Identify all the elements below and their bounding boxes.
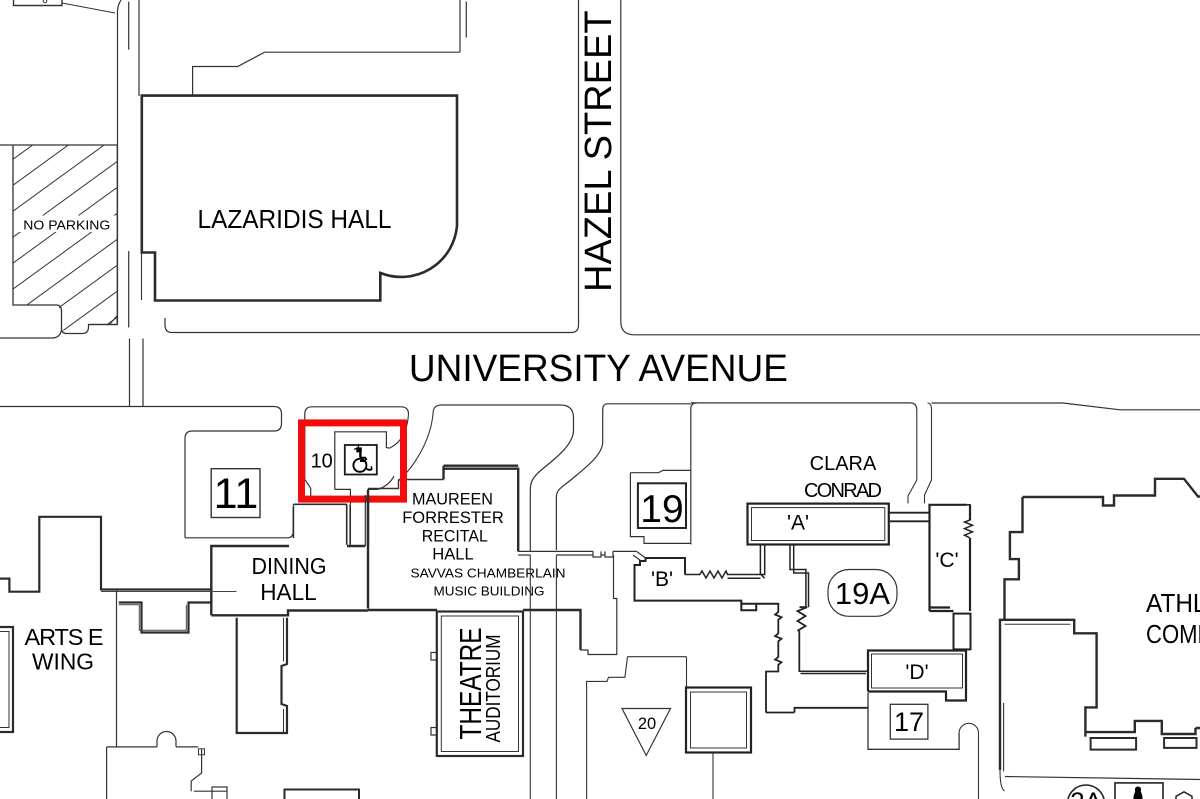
svg-text:RECITAL: RECITAL bbox=[422, 528, 488, 546]
svg-text:CLARA: CLARA bbox=[810, 453, 877, 475]
svg-text:10: 10 bbox=[311, 451, 333, 473]
svg-text:MUSIC BUILDING: MUSIC BUILDING bbox=[434, 584, 545, 599]
svg-text:2A: 2A bbox=[1070, 787, 1102, 799]
svg-text:UNIVERSITY AVENUE: UNIVERSITY AVENUE bbox=[409, 348, 788, 390]
svg-text:AUDITORIUM: AUDITORIUM bbox=[483, 635, 505, 743]
svg-text:'D': 'D' bbox=[905, 661, 928, 684]
svg-text:HALL: HALL bbox=[432, 546, 474, 564]
svg-text:NO PARKING: NO PARKING bbox=[23, 219, 110, 233]
svg-text:FORRESTER: FORRESTER bbox=[402, 509, 504, 527]
svg-text:LAZARIDIS HALL: LAZARIDIS HALL bbox=[198, 204, 392, 234]
svg-text:19A: 19A bbox=[835, 576, 890, 611]
svg-text:11: 11 bbox=[214, 470, 259, 518]
svg-text:MAUREEN: MAUREEN bbox=[412, 491, 493, 509]
svg-text:ATHLETIC: ATHLETIC bbox=[1146, 588, 1200, 618]
svg-text:HALL: HALL bbox=[260, 579, 317, 605]
svg-text:ARTS E: ARTS E bbox=[25, 624, 104, 650]
svg-text:DINING: DINING bbox=[252, 553, 327, 579]
svg-text:'B': 'B' bbox=[651, 568, 673, 591]
svg-text:COMPLEX: COMPLEX bbox=[1146, 619, 1200, 649]
svg-text:20: 20 bbox=[638, 715, 656, 733]
svg-text:WING: WING bbox=[32, 649, 94, 675]
svg-text:SAVVAS CHAMBERLAIN: SAVVAS CHAMBERLAIN bbox=[411, 566, 566, 581]
svg-text:17: 17 bbox=[894, 707, 924, 737]
svg-text:CONRAD: CONRAD bbox=[804, 480, 882, 502]
svg-text:'C': 'C' bbox=[935, 549, 958, 572]
svg-text:'A': 'A' bbox=[787, 512, 809, 535]
svg-text:HAZEL STREET: HAZEL STREET bbox=[578, 10, 620, 292]
svg-text:19: 19 bbox=[640, 488, 683, 531]
